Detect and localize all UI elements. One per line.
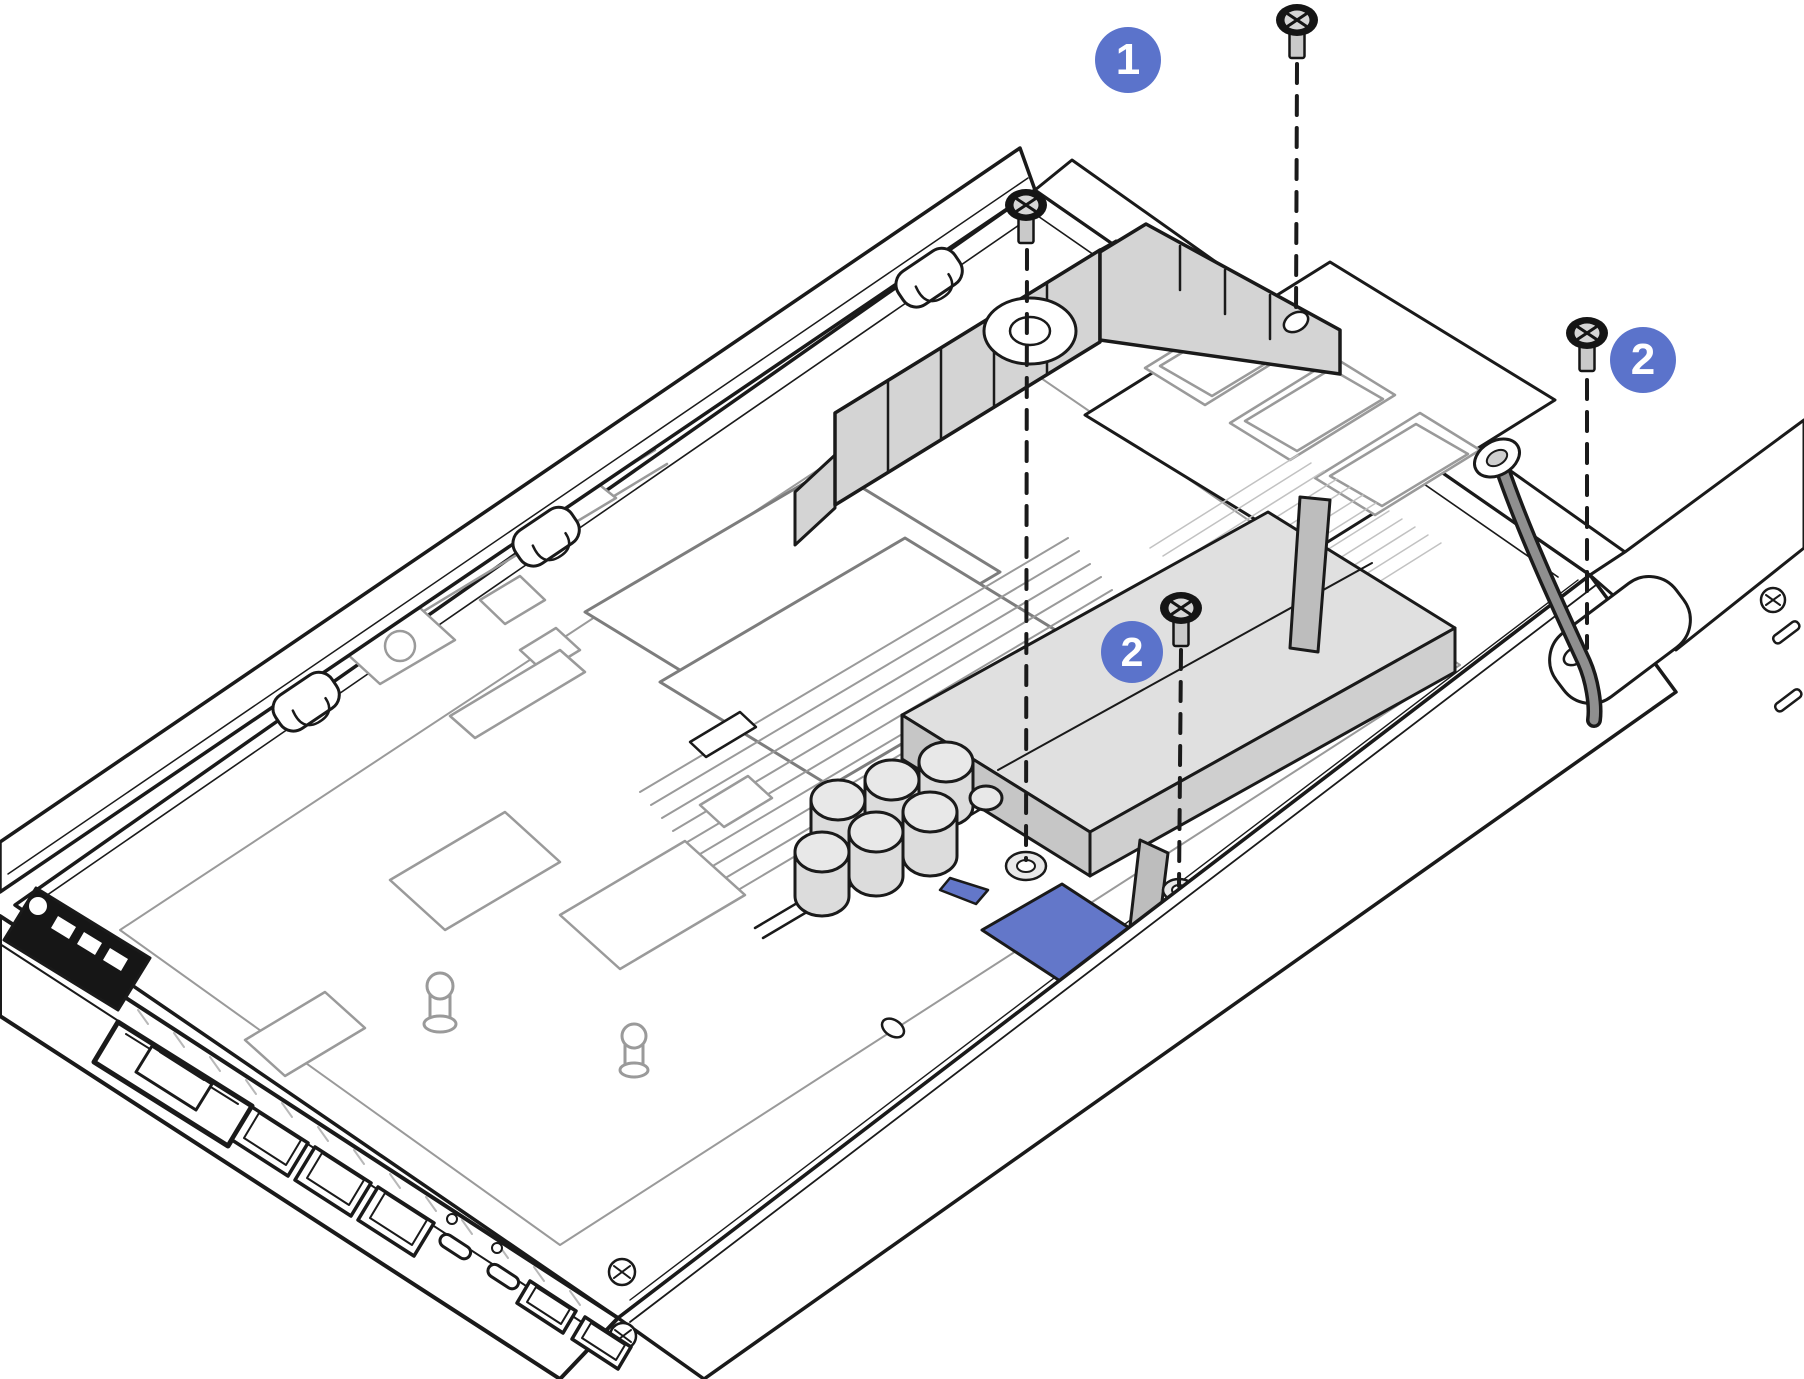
leader-screw-top (1296, 64, 1297, 318)
wall-slots (1772, 620, 1803, 713)
callout-2b-badge: 2 (1101, 621, 1163, 683)
figure: 1 2 2 (0, 0, 1804, 1379)
callout-1-badge: 1 (1095, 27, 1161, 93)
screw-icon (1566, 317, 1608, 371)
baffle-boss (984, 298, 1076, 364)
technical-illustration (0, 0, 1804, 1379)
screw-icon (1276, 4, 1318, 58)
callout-2-badge: 2 (1610, 327, 1676, 393)
